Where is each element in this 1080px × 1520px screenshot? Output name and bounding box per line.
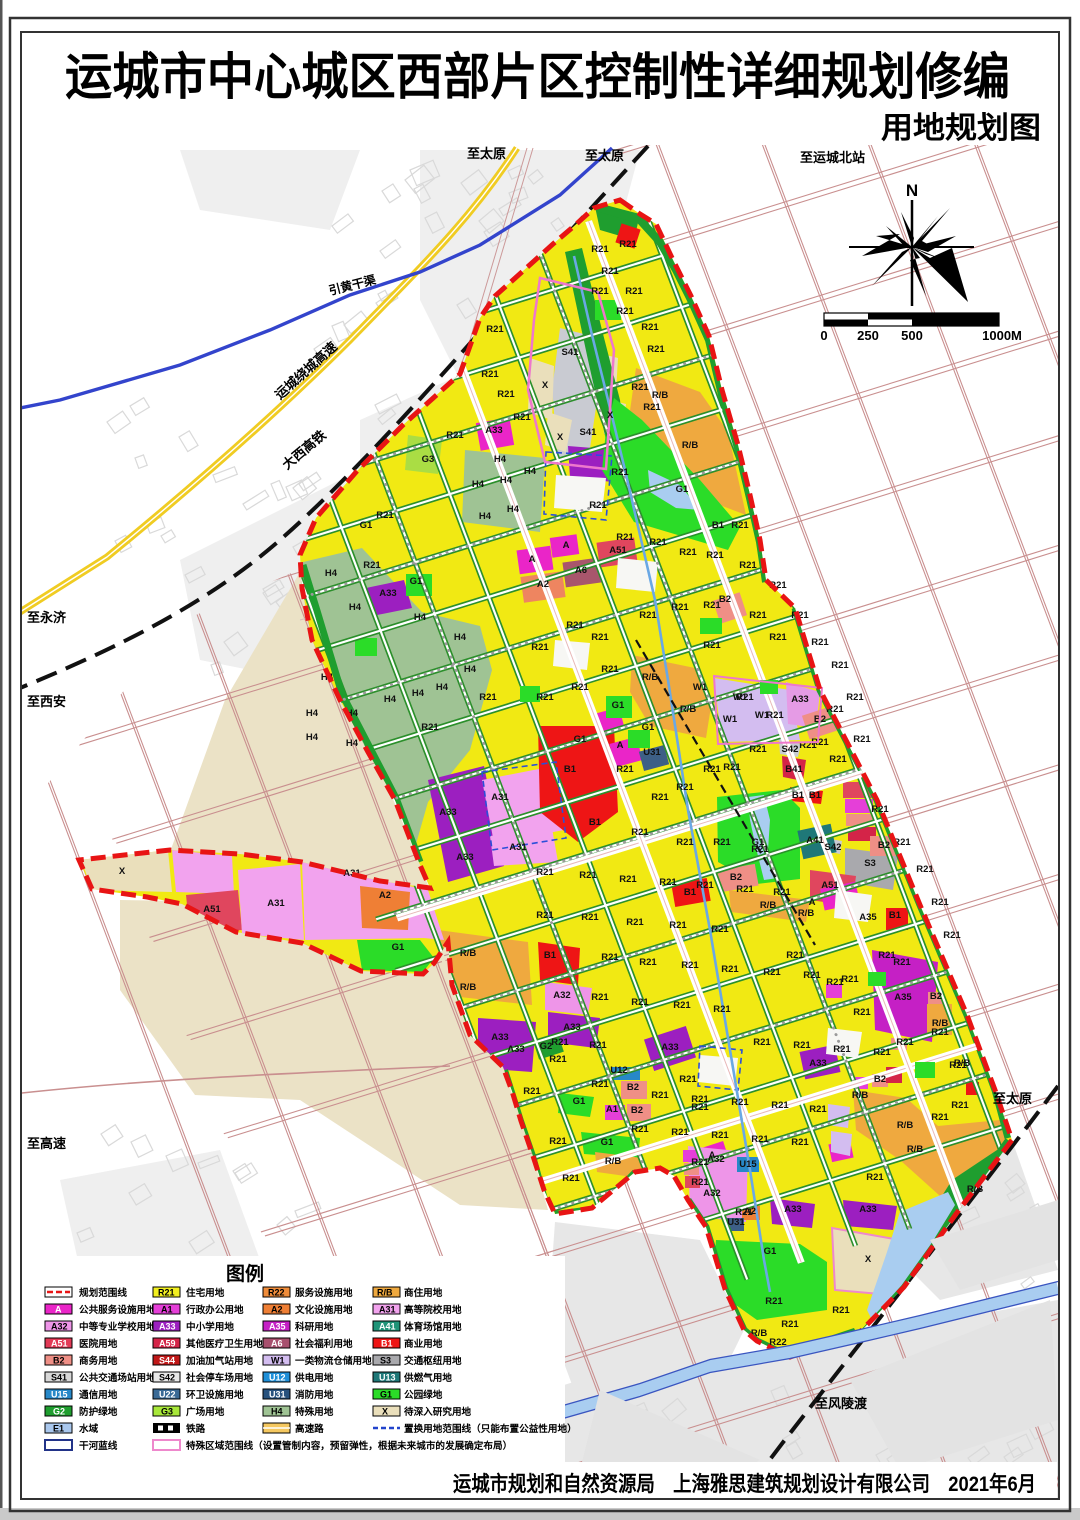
svg-text:A: A xyxy=(563,540,570,551)
svg-text:B2: B2 xyxy=(730,872,742,883)
svg-text:S3: S3 xyxy=(380,1356,391,1366)
svg-text:R21: R21 xyxy=(631,1124,649,1135)
svg-text:W1: W1 xyxy=(271,1356,285,1366)
svg-text:R21: R21 xyxy=(158,1288,175,1298)
svg-text:R21: R21 xyxy=(671,602,689,613)
svg-text:R21: R21 xyxy=(791,1137,809,1148)
svg-text:干河蓝线: 干河蓝线 xyxy=(79,1440,118,1452)
svg-text:H4: H4 xyxy=(507,504,520,515)
svg-text:X: X xyxy=(119,866,126,877)
svg-text:R/B: R/B xyxy=(377,1288,393,1298)
svg-text:A6: A6 xyxy=(575,565,587,576)
svg-text:R21: R21 xyxy=(639,610,657,621)
svg-text:R21: R21 xyxy=(601,952,619,963)
svg-text:R21: R21 xyxy=(486,324,504,335)
svg-text:A31: A31 xyxy=(267,898,285,909)
svg-text:U22: U22 xyxy=(159,1390,176,1400)
svg-text:S41: S41 xyxy=(580,427,598,438)
svg-text:R21: R21 xyxy=(481,369,499,380)
svg-text:R21: R21 xyxy=(753,1037,771,1048)
svg-text:1000M: 1000M xyxy=(982,328,1022,343)
svg-text:R21: R21 xyxy=(691,1157,709,1168)
svg-text:A51: A51 xyxy=(821,880,839,891)
svg-text:R21: R21 xyxy=(711,924,729,935)
svg-text:R21: R21 xyxy=(616,306,634,317)
svg-text:R21: R21 xyxy=(589,1040,607,1051)
svg-text:B1: B1 xyxy=(712,520,725,531)
svg-text:消防用地: 消防用地 xyxy=(295,1389,334,1401)
svg-text:商务用地: 商务用地 xyxy=(79,1355,118,1367)
svg-text:R21: R21 xyxy=(679,547,697,558)
svg-text:G1: G1 xyxy=(573,1096,586,1107)
svg-text:R21: R21 xyxy=(841,974,859,985)
svg-text:A2: A2 xyxy=(271,1305,283,1315)
svg-text:N: N xyxy=(906,181,918,200)
svg-text:A41: A41 xyxy=(806,835,824,846)
svg-text:A33: A33 xyxy=(439,807,456,818)
svg-text:H4: H4 xyxy=(414,612,427,623)
svg-text:B2: B2 xyxy=(874,1074,886,1085)
svg-text:特殊用地: 特殊用地 xyxy=(295,1406,334,1418)
svg-text:R21: R21 xyxy=(706,550,724,561)
svg-text:R21: R21 xyxy=(673,1000,691,1011)
svg-text:G1: G1 xyxy=(392,942,405,953)
svg-text:G1: G1 xyxy=(676,484,689,495)
svg-text:A1: A1 xyxy=(161,1305,173,1315)
svg-text:至太原: 至太原 xyxy=(585,148,624,163)
svg-text:R21: R21 xyxy=(751,1134,769,1145)
svg-text:运城市中心城区西部片区控制性详细规划修编: 运城市中心城区西部片区控制性详细规划修编 xyxy=(65,49,1010,105)
svg-text:R21: R21 xyxy=(769,632,787,643)
svg-text:R21: R21 xyxy=(641,322,659,333)
svg-text:R21: R21 xyxy=(626,917,644,928)
svg-text:A: A xyxy=(809,897,816,908)
svg-text:R21: R21 xyxy=(571,682,589,693)
svg-text:一类物流仓储用地: 一类物流仓储用地 xyxy=(295,1355,372,1367)
svg-text:B2: B2 xyxy=(631,1105,643,1116)
svg-text:R21: R21 xyxy=(671,1127,689,1138)
svg-text:B1: B1 xyxy=(589,817,602,828)
svg-text:A35: A35 xyxy=(269,1322,286,1332)
svg-text:R/B: R/B xyxy=(652,390,669,401)
svg-text:R/B: R/B xyxy=(460,982,477,993)
svg-text:B1: B1 xyxy=(889,910,902,921)
svg-text:R21: R21 xyxy=(536,910,554,921)
svg-text:A51: A51 xyxy=(203,904,221,915)
svg-text:S42: S42 xyxy=(159,1373,175,1383)
svg-text:R21: R21 xyxy=(562,1173,580,1184)
svg-text:R21: R21 xyxy=(591,992,609,1003)
svg-text:公共服务设施用地: 公共服务设施用地 xyxy=(79,1304,156,1316)
svg-text:至太原: 至太原 xyxy=(993,1091,1032,1106)
svg-text:R21: R21 xyxy=(581,912,599,923)
svg-text:H4: H4 xyxy=(346,738,359,749)
svg-text:R21: R21 xyxy=(625,286,643,297)
svg-text:B1: B1 xyxy=(381,1339,393,1349)
svg-text:R21: R21 xyxy=(376,510,394,521)
svg-text:A: A xyxy=(55,1305,62,1315)
svg-text:商住用地: 商住用地 xyxy=(404,1287,443,1299)
svg-text:待深入研究用地: 待深入研究用地 xyxy=(404,1406,472,1418)
svg-text:R21: R21 xyxy=(766,710,784,721)
svg-text:A2: A2 xyxy=(379,890,391,901)
svg-text:R21: R21 xyxy=(639,957,657,968)
svg-text:R21: R21 xyxy=(943,930,961,941)
svg-text:R21: R21 xyxy=(831,660,849,671)
svg-text:R21: R21 xyxy=(579,870,597,881)
svg-text:R21: R21 xyxy=(691,1177,709,1188)
svg-text:G1: G1 xyxy=(601,1137,614,1148)
svg-text:R21: R21 xyxy=(951,1100,969,1111)
svg-text:R21: R21 xyxy=(643,402,661,413)
svg-text:H4: H4 xyxy=(472,479,485,490)
svg-text:其他医疗卫生用地: 其他医疗卫生用地 xyxy=(186,1338,263,1350)
svg-text:A33: A33 xyxy=(379,588,396,599)
svg-text:A: A xyxy=(617,740,624,751)
svg-text:S42: S42 xyxy=(782,744,799,755)
svg-text:B1: B1 xyxy=(809,790,822,801)
svg-text:A33: A33 xyxy=(859,1204,876,1215)
svg-text:高等院校用地: 高等院校用地 xyxy=(404,1304,462,1316)
svg-text:公园绿地: 公园绿地 xyxy=(404,1389,443,1401)
svg-text:R21: R21 xyxy=(896,1037,914,1048)
svg-text:R21: R21 xyxy=(731,520,749,531)
svg-text:R21: R21 xyxy=(735,1207,753,1218)
svg-text:U12: U12 xyxy=(269,1373,286,1383)
svg-text:R21: R21 xyxy=(811,637,829,648)
svg-text:至太原: 至太原 xyxy=(467,146,506,161)
svg-text:R/B: R/B xyxy=(907,1144,924,1155)
svg-text:H4: H4 xyxy=(436,682,449,693)
svg-text:服务设施用地: 服务设施用地 xyxy=(295,1287,353,1299)
svg-text:S41: S41 xyxy=(51,1373,67,1383)
svg-text:G1: G1 xyxy=(360,520,373,531)
svg-text:科研用地: 科研用地 xyxy=(295,1321,334,1333)
svg-text:X: X xyxy=(382,1407,388,1417)
svg-text:R21: R21 xyxy=(536,867,554,878)
svg-text:W1: W1 xyxy=(723,714,738,725)
svg-text:R21: R21 xyxy=(696,880,714,891)
svg-text:H4: H4 xyxy=(306,732,319,743)
svg-text:A32: A32 xyxy=(51,1322,68,1332)
svg-text:G1: G1 xyxy=(612,700,625,711)
svg-text:R21: R21 xyxy=(649,537,667,548)
svg-text:行政办公用地: 行政办公用地 xyxy=(185,1304,244,1316)
svg-text:H4: H4 xyxy=(325,568,338,579)
svg-text:S42: S42 xyxy=(825,842,842,853)
svg-text:G1: G1 xyxy=(574,734,587,745)
svg-text:H4: H4 xyxy=(454,632,467,643)
svg-text:至风陵渡: 至风陵渡 xyxy=(815,1396,868,1411)
svg-text:R21: R21 xyxy=(601,266,619,277)
svg-text:A51: A51 xyxy=(609,545,627,556)
svg-text:R/B: R/B xyxy=(954,1058,971,1069)
svg-text:置换用地范围线（只能布置公益性用地）: 置换用地范围线（只能布置公益性用地） xyxy=(404,1423,577,1435)
svg-text:S41: S41 xyxy=(562,347,580,358)
svg-text:R/B: R/B xyxy=(682,440,699,451)
svg-text:B1: B1 xyxy=(684,887,697,898)
svg-text:R/B: R/B xyxy=(642,672,659,683)
svg-text:R21: R21 xyxy=(531,642,549,653)
svg-text:A31: A31 xyxy=(491,792,509,803)
svg-text:R21: R21 xyxy=(739,560,757,571)
svg-text:250: 250 xyxy=(857,328,879,343)
svg-text:R21: R21 xyxy=(659,877,677,888)
svg-text:H4: H4 xyxy=(494,454,507,465)
svg-text:A31: A31 xyxy=(509,842,527,853)
svg-text:H4: H4 xyxy=(500,475,513,486)
svg-text:A59: A59 xyxy=(159,1339,176,1349)
svg-text:R21: R21 xyxy=(551,1037,569,1048)
svg-text:社会停车场用地: 社会停车场用地 xyxy=(185,1372,254,1384)
svg-text:供燃气用地: 供燃气用地 xyxy=(403,1372,452,1384)
svg-text:中小学用地: 中小学用地 xyxy=(186,1321,234,1333)
svg-text:R21: R21 xyxy=(809,1104,827,1115)
svg-text:A41: A41 xyxy=(379,1322,396,1332)
svg-text:R21: R21 xyxy=(703,640,721,651)
svg-text:R21: R21 xyxy=(749,610,767,621)
svg-text:R21: R21 xyxy=(853,734,871,745)
svg-text:R21: R21 xyxy=(536,692,554,703)
svg-text:R21: R21 xyxy=(833,1044,851,1055)
svg-text:G1: G1 xyxy=(752,837,765,848)
svg-text:A33: A33 xyxy=(485,425,502,436)
svg-text:商业用地: 商业用地 xyxy=(404,1338,443,1350)
svg-text:R21: R21 xyxy=(893,957,911,968)
svg-text:A33: A33 xyxy=(809,1058,826,1069)
svg-text:B2: B2 xyxy=(878,840,890,851)
svg-text:S44: S44 xyxy=(159,1356,175,1366)
svg-text:铁路: 铁路 xyxy=(186,1423,206,1435)
svg-text:R21: R21 xyxy=(591,632,609,643)
svg-text:R21: R21 xyxy=(601,664,619,675)
svg-text:U15: U15 xyxy=(739,1159,757,1170)
svg-text:H4: H4 xyxy=(524,466,537,477)
svg-text:A33: A33 xyxy=(491,1032,508,1043)
svg-text:R/B: R/B xyxy=(605,1156,622,1167)
svg-text:R21: R21 xyxy=(631,997,649,1008)
svg-text:A31: A31 xyxy=(379,1305,396,1315)
svg-text:500: 500 xyxy=(901,328,923,343)
svg-text:R21: R21 xyxy=(497,389,515,400)
svg-text:R21: R21 xyxy=(829,754,847,765)
svg-text:R21: R21 xyxy=(589,500,607,511)
svg-text:R/B: R/B xyxy=(680,704,697,715)
svg-text:R21: R21 xyxy=(866,1172,884,1183)
svg-text:B2: B2 xyxy=(930,991,942,1002)
svg-text:A1: A1 xyxy=(606,1104,619,1115)
svg-text:R21: R21 xyxy=(591,286,609,297)
svg-text:G3: G3 xyxy=(422,454,435,465)
svg-text:R21: R21 xyxy=(619,239,637,250)
svg-text:用地规划图: 用地规划图 xyxy=(881,112,1041,145)
svg-text:R21: R21 xyxy=(763,967,781,978)
svg-text:G1: G1 xyxy=(410,576,423,587)
svg-text:B2: B2 xyxy=(627,1082,639,1093)
svg-text:特殊区域范围线（设置管制内容，预留弹性，根据未来城市的发展确: 特殊区域范围线（设置管制内容，预留弹性，根据未来城市的发展确定布局） xyxy=(186,1440,512,1452)
svg-text:R21: R21 xyxy=(616,764,634,775)
svg-text:A33: A33 xyxy=(784,1204,801,1215)
svg-text:B1: B1 xyxy=(564,764,577,775)
svg-text:U13: U13 xyxy=(379,1373,396,1383)
svg-text:R21: R21 xyxy=(679,1074,697,1085)
svg-text:R21: R21 xyxy=(479,692,497,703)
svg-text:R21: R21 xyxy=(631,827,649,838)
svg-text:R21: R21 xyxy=(611,467,629,478)
svg-text:R/B: R/B xyxy=(798,908,815,919)
svg-text:A33: A33 xyxy=(159,1322,176,1332)
svg-text:R21: R21 xyxy=(647,344,665,355)
svg-text:G1: G1 xyxy=(642,722,655,733)
svg-text:R21: R21 xyxy=(691,1102,709,1113)
svg-text:R21: R21 xyxy=(631,382,649,393)
svg-text:U12: U12 xyxy=(610,1065,627,1076)
svg-text:R21: R21 xyxy=(931,1027,949,1038)
svg-text:R21: R21 xyxy=(591,1079,609,1090)
svg-text:加油加气站用地: 加油加气站用地 xyxy=(185,1355,254,1367)
svg-text:0: 0 xyxy=(820,328,827,343)
svg-text:X: X xyxy=(542,380,549,391)
svg-text:B2: B2 xyxy=(719,594,731,605)
svg-text:A33: A33 xyxy=(507,1044,524,1055)
svg-text:X: X xyxy=(607,410,614,421)
svg-text:R22: R22 xyxy=(268,1288,285,1298)
svg-text:高速路: 高速路 xyxy=(295,1423,324,1435)
svg-text:R21: R21 xyxy=(363,560,381,571)
svg-text:图例: 图例 xyxy=(226,1262,264,1285)
svg-text:R21: R21 xyxy=(711,1130,729,1141)
svg-text:R21: R21 xyxy=(523,1086,541,1097)
svg-text:X: X xyxy=(865,1254,872,1265)
svg-text:G3: G3 xyxy=(161,1407,173,1417)
svg-text:运城市规划和自然资源局 上海雅思建筑规划设计有限公司 202: 运城市规划和自然资源局 上海雅思建筑规划设计有限公司 2021年6月 xyxy=(453,1472,1036,1496)
svg-text:R21: R21 xyxy=(446,430,464,441)
svg-text:R21: R21 xyxy=(651,1090,669,1101)
svg-text:H4: H4 xyxy=(349,602,362,613)
svg-text:A33: A33 xyxy=(791,694,808,705)
svg-text:A2: A2 xyxy=(537,579,549,590)
svg-text:R21: R21 xyxy=(786,950,804,961)
svg-text:B1: B1 xyxy=(792,790,805,801)
svg-text:R21: R21 xyxy=(916,864,934,875)
svg-text:规划范围线: 规划范围线 xyxy=(79,1287,127,1299)
svg-text:R21: R21 xyxy=(513,412,531,423)
svg-text:体育场馆用地: 体育场馆用地 xyxy=(404,1321,462,1333)
svg-text:R21: R21 xyxy=(931,1112,949,1123)
svg-text:H4: H4 xyxy=(412,688,425,699)
svg-text:R21: R21 xyxy=(651,792,669,803)
svg-text:R21: R21 xyxy=(846,692,864,703)
svg-text:R21: R21 xyxy=(681,960,699,971)
svg-text:R21: R21 xyxy=(549,1054,567,1065)
svg-text:水域: 水域 xyxy=(78,1423,99,1435)
svg-text:R21: R21 xyxy=(713,1004,731,1015)
svg-text:B2: B2 xyxy=(53,1356,65,1366)
svg-text:A35: A35 xyxy=(859,912,877,923)
svg-text:R21: R21 xyxy=(676,782,694,793)
svg-text:R21: R21 xyxy=(731,1097,749,1108)
svg-text:B41: B41 xyxy=(785,764,803,775)
svg-text:R21: R21 xyxy=(931,897,949,908)
svg-text:住宅用地: 住宅用地 xyxy=(186,1287,225,1299)
svg-text:W1: W1 xyxy=(693,682,708,693)
svg-text:R21: R21 xyxy=(669,920,687,931)
svg-text:R21: R21 xyxy=(832,1305,850,1316)
svg-text:E1: E1 xyxy=(53,1424,64,1434)
svg-text:R21: R21 xyxy=(713,837,731,848)
svg-text:R21: R21 xyxy=(703,764,721,775)
svg-text:至运城北站: 至运城北站 xyxy=(800,150,865,165)
svg-text:A51: A51 xyxy=(51,1339,68,1349)
svg-text:A32: A32 xyxy=(707,1154,724,1165)
svg-text:交通枢纽用地: 交通枢纽用地 xyxy=(404,1355,462,1367)
svg-text:A6: A6 xyxy=(271,1339,283,1349)
svg-text:X: X xyxy=(557,432,564,443)
svg-text:至永济: 至永济 xyxy=(27,610,67,625)
svg-text:中等专业学校用地: 中等专业学校用地 xyxy=(79,1321,156,1333)
svg-text:G1: G1 xyxy=(764,1246,777,1257)
svg-text:R21: R21 xyxy=(421,722,439,733)
svg-text:R21: R21 xyxy=(736,692,754,703)
svg-text:R21: R21 xyxy=(771,1100,789,1111)
svg-text:R21: R21 xyxy=(793,1040,811,1051)
svg-text:R21: R21 xyxy=(721,964,739,975)
svg-text:R21: R21 xyxy=(873,1047,891,1058)
svg-text:G2: G2 xyxy=(53,1407,65,1417)
svg-text:供电用地: 供电用地 xyxy=(294,1372,334,1384)
svg-text:U31: U31 xyxy=(727,1217,745,1228)
svg-text:公共交通场站用地: 公共交通场站用地 xyxy=(79,1372,156,1384)
svg-text:R21: R21 xyxy=(676,837,694,848)
svg-text:A33: A33 xyxy=(456,852,473,863)
svg-text:R21: R21 xyxy=(736,884,754,895)
svg-text:通信用地: 通信用地 xyxy=(79,1389,118,1401)
svg-text:A33: A33 xyxy=(563,1022,580,1033)
svg-text:R21: R21 xyxy=(566,620,584,631)
svg-text:R21: R21 xyxy=(591,244,609,255)
svg-text:G1: G1 xyxy=(380,1390,392,1400)
svg-text:R21: R21 xyxy=(749,744,767,755)
svg-text:广场用地: 广场用地 xyxy=(186,1406,225,1418)
svg-text:R21: R21 xyxy=(549,1136,567,1147)
svg-text:R21: R21 xyxy=(723,762,741,773)
svg-text:U31: U31 xyxy=(269,1390,286,1400)
svg-text:A35: A35 xyxy=(894,992,912,1003)
svg-text:R21: R21 xyxy=(781,1319,799,1330)
svg-text:R21: R21 xyxy=(619,874,637,885)
svg-text:至西安: 至西安 xyxy=(27,694,66,709)
svg-text:R/B: R/B xyxy=(760,900,777,911)
svg-text:G2: G2 xyxy=(540,1041,553,1052)
svg-text:R21: R21 xyxy=(803,970,821,981)
svg-text:H4: H4 xyxy=(271,1407,283,1417)
svg-text:社会福利用地: 社会福利用地 xyxy=(294,1338,353,1350)
svg-text:R21: R21 xyxy=(616,532,634,543)
svg-text:A: A xyxy=(529,554,536,565)
svg-text:R21: R21 xyxy=(826,977,844,988)
svg-text:U31: U31 xyxy=(643,747,661,758)
svg-text:R21: R21 xyxy=(765,1296,783,1307)
svg-text:H4: H4 xyxy=(306,708,319,719)
svg-text:B1: B1 xyxy=(544,950,557,961)
svg-text:R/B: R/B xyxy=(460,948,477,959)
svg-text:R21: R21 xyxy=(853,1007,871,1018)
svg-text:A32: A32 xyxy=(703,1188,720,1199)
svg-text:R/B: R/B xyxy=(852,1090,869,1101)
svg-text:环卫设施用地: 环卫设施用地 xyxy=(186,1389,244,1401)
svg-text:R21: R21 xyxy=(773,887,791,898)
svg-text:H4: H4 xyxy=(479,511,492,522)
